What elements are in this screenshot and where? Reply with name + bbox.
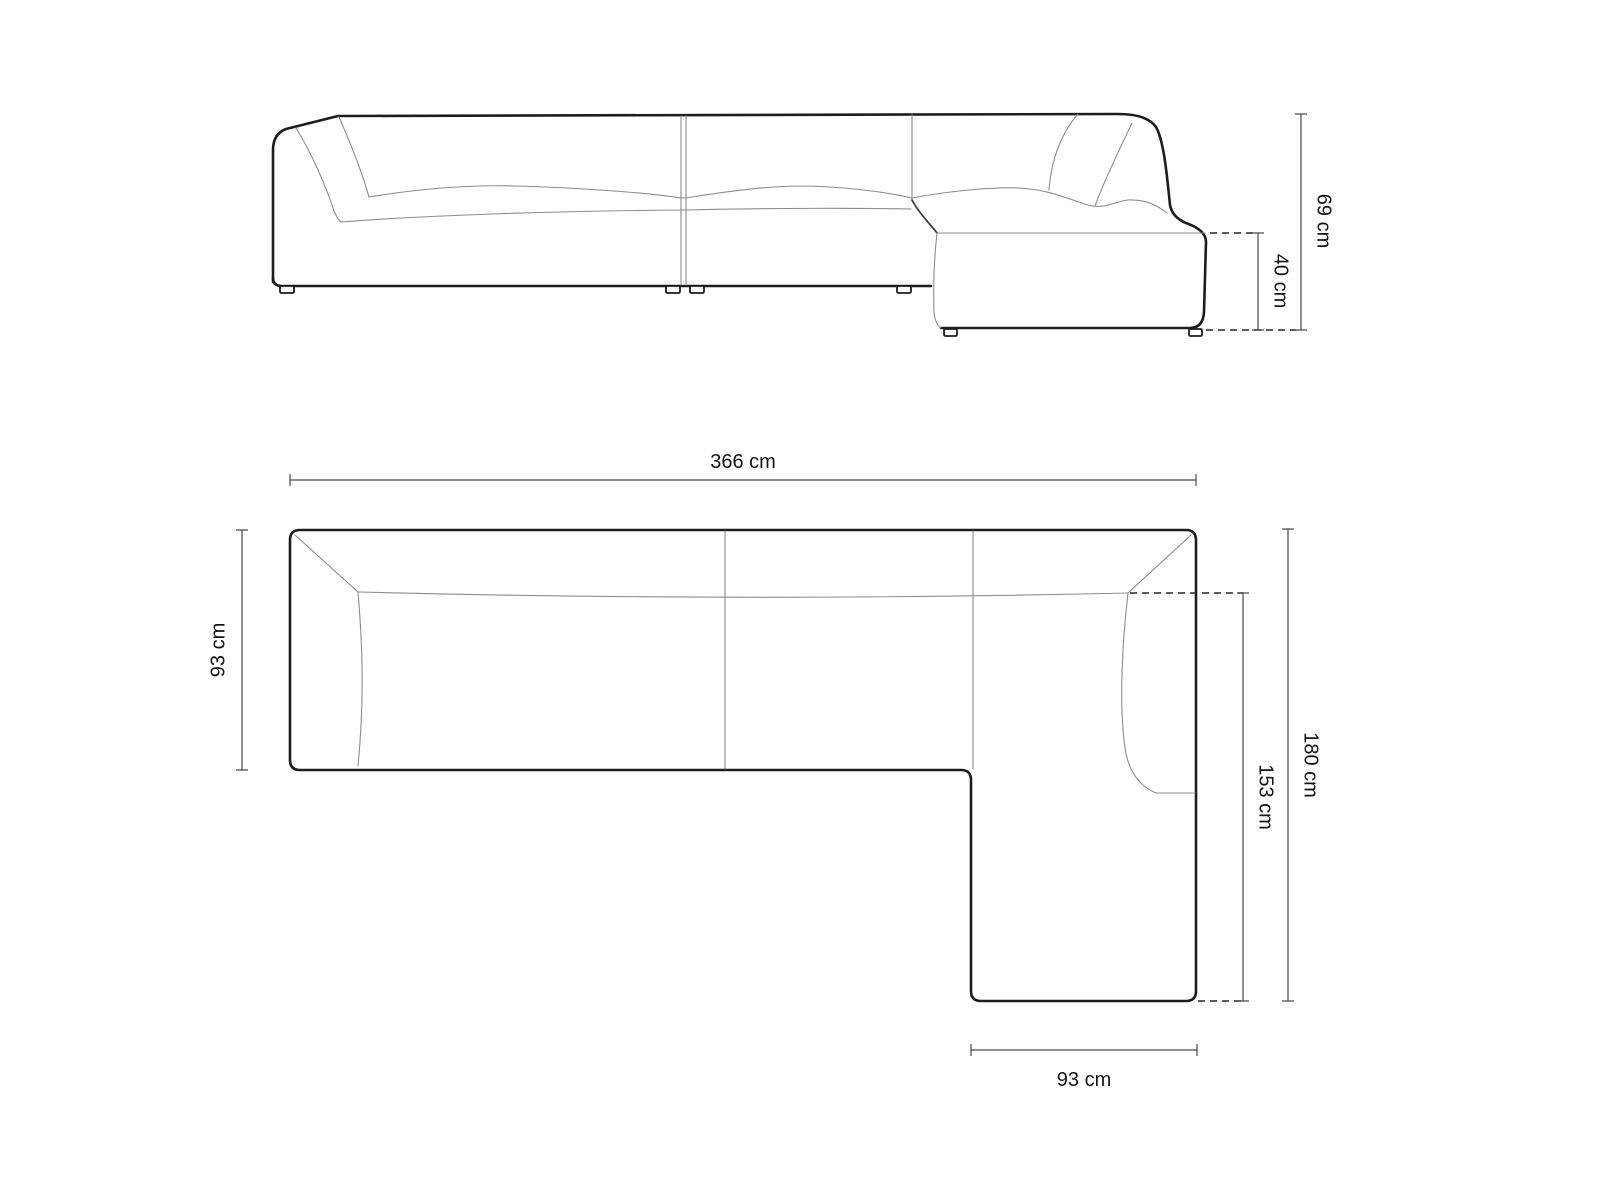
dim-label-chaise-length: 153 cm	[1255, 764, 1277, 830]
plan-left-inner-edge	[358, 592, 362, 766]
sofa-dimension-drawing: 40 cm 69 cm	[0, 0, 1600, 1200]
dimension-total-depth: 180 cm	[1282, 529, 1322, 1001]
dimension-chaise-width: 93 cm	[971, 1044, 1197, 1091]
dim-label-total-depth: 180 cm	[1300, 732, 1322, 798]
elevation-corner-cushion-edge-right	[1095, 123, 1132, 206]
dim-label-side-depth: 93 cm	[207, 623, 229, 677]
elevation-chaise-front-left-edge	[934, 233, 941, 328]
dimension-chaise-length: 153 cm	[1237, 593, 1277, 1001]
dim-label-seat-height: 40 cm	[1270, 254, 1292, 308]
elevation-leg-1	[280, 286, 294, 293]
elevation-left-backrest-outer-curve	[296, 128, 341, 222]
elevation-seat-front-line	[341, 208, 911, 222]
plan-view: 366 cm 93 cm 153 cm 180 cm	[207, 451, 1321, 1091]
dim-label-total-width: 366 cm	[710, 451, 776, 473]
elevation-view: 40 cm 69 cm	[273, 114, 1335, 336]
plan-backrest-diagonal-right	[1128, 535, 1191, 593]
dimension-total-width: 366 cm	[290, 451, 1196, 486]
elevation-left-backrest-inner-curve	[339, 117, 369, 197]
plan-backrest-diagonal-left	[295, 535, 358, 592]
plan-backrest-inner-line	[358, 592, 1128, 597]
elevation-leg-3	[690, 286, 704, 293]
technical-drawing-page: 40 cm 69 cm	[0, 0, 1600, 1200]
plan-sofa-outline	[290, 530, 1196, 1001]
elevation-leg-4	[897, 286, 911, 293]
dimension-total-height: 69 cm	[1295, 114, 1335, 330]
plan-chaise-inner-edge	[1122, 593, 1195, 793]
elevation-sofa-outline	[273, 114, 1206, 328]
dimension-side-depth: 93 cm	[207, 530, 248, 770]
elevation-chaise-leg-1	[944, 329, 957, 336]
elevation-chaise-leg-2	[1189, 329, 1202, 336]
dim-label-total-height: 69 cm	[1313, 194, 1335, 248]
dimension-seat-height: 40 cm	[1252, 233, 1292, 330]
dim-label-chaise-width: 93 cm	[1057, 1069, 1111, 1091]
elevation-chaise-left-slope	[912, 200, 937, 233]
elevation-leg-2	[666, 286, 680, 293]
elevation-sofa-base-line	[273, 278, 931, 286]
elevation-corner-cushion-edge-left	[1049, 114, 1078, 190]
